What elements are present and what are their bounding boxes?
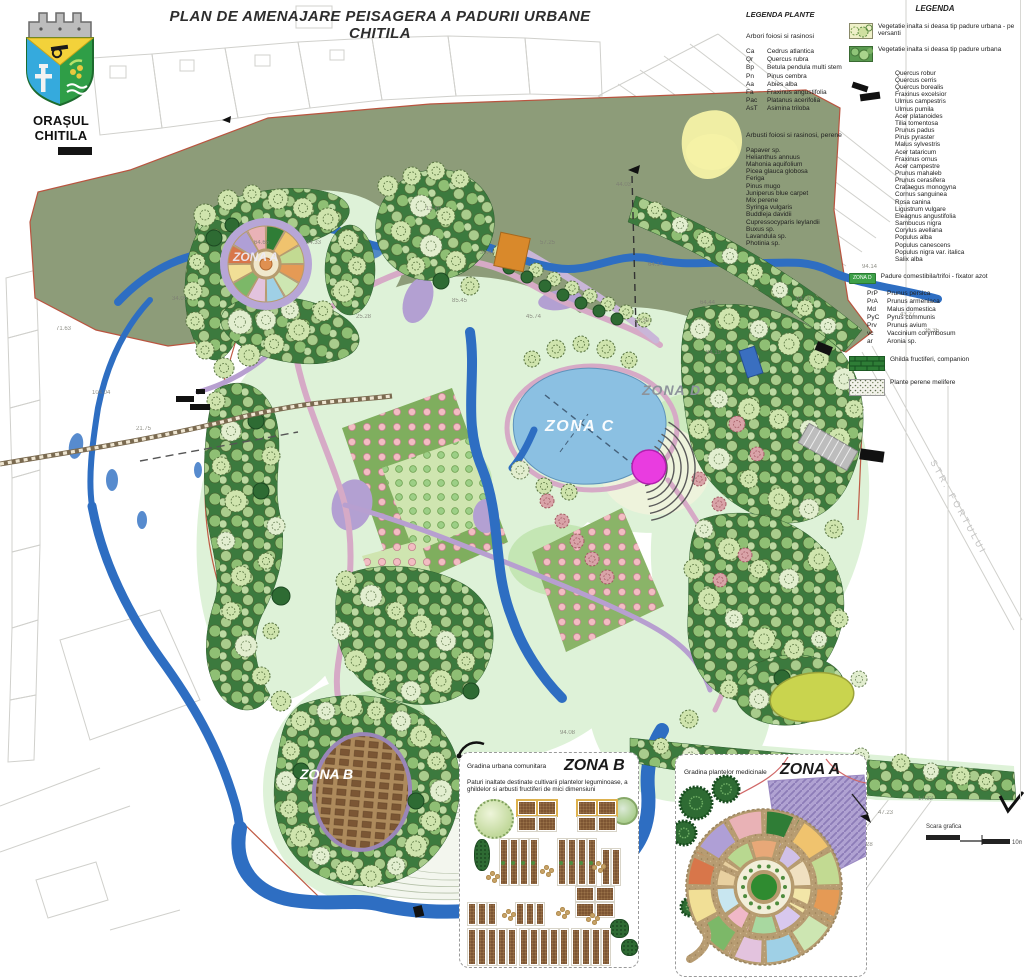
species-item: Acer tataricum (895, 149, 1021, 156)
species-name: Prunus armeniaca (887, 298, 940, 306)
tree-crown (923, 763, 939, 779)
tree-crown (336, 571, 356, 591)
tree-crown (280, 800, 298, 818)
tree-crown (243, 185, 261, 203)
tree-crown (387, 857, 405, 875)
species-code: PyC (867, 314, 887, 322)
legend-entry4-label: Plante perene melifere (890, 379, 955, 386)
raised-bed (592, 929, 600, 965)
tree-crown (811, 631, 827, 647)
plant-dot (559, 861, 563, 865)
tree-crown (978, 773, 994, 789)
raised-bed (576, 887, 594, 901)
tree-crown (231, 566, 251, 586)
flower-cluster (486, 875, 491, 880)
species-item: Sambucus nigra (895, 220, 1021, 227)
raised-bed (488, 929, 496, 965)
tree-crown (536, 478, 552, 494)
species-code: PrA (867, 298, 887, 306)
species-name: Malus domestica (887, 306, 936, 314)
tree-crown (769, 409, 789, 429)
shrub-item: Pinus mugo (746, 183, 848, 190)
tree-crown (695, 520, 713, 538)
tree-crown (738, 398, 760, 420)
tree-crown (268, 189, 288, 209)
food-forest-row: PyCPyrus communis (867, 314, 1021, 322)
plant-dot (569, 861, 573, 865)
species-code: ar (867, 338, 887, 346)
species-item: Crataegus monogyna (895, 184, 1021, 191)
shrub (474, 839, 490, 871)
legend-species-list: Quercus roburQuercus cerrisQuercus borea… (895, 70, 1021, 263)
raised-bed (598, 801, 616, 815)
flower-cluster (598, 868, 603, 873)
legend-tree-row: CaCedrus atlantica (746, 48, 848, 56)
tree-crown (718, 308, 740, 330)
species-item: Acer platanoides (895, 113, 1021, 120)
vegetation-dense-icon (849, 46, 873, 64)
tree-crown (317, 208, 339, 230)
tree-crown (336, 861, 356, 881)
tree-crown (291, 711, 311, 731)
tree-crown (340, 695, 362, 717)
tree-crown (784, 639, 804, 659)
shrub (610, 919, 629, 938)
legend-plante-title: LEGENDA PLANTE (746, 10, 848, 19)
species-code: Aa (746, 81, 767, 89)
raised-bed (612, 849, 620, 885)
legend-entry1-label: Vegetatie inalta si deasa tip padure urb… (878, 23, 1021, 38)
flower-cluster (592, 920, 597, 925)
tree-crown (282, 742, 300, 760)
tree-crown (403, 167, 421, 185)
flower-cluster (586, 917, 591, 922)
tree-crown (360, 585, 382, 607)
flower-cluster (546, 872, 551, 877)
tree-crown (573, 336, 589, 352)
tree-crown (206, 230, 222, 246)
tree-crown (825, 520, 843, 538)
scale-bar-graphic: 10m (926, 832, 1022, 848)
plant-dot (501, 861, 505, 865)
species-item: Populus alba (895, 234, 1021, 241)
logo-caption: ORAȘUL CHITILA (6, 113, 116, 143)
tree-crown (689, 419, 709, 439)
tree-crown (575, 297, 587, 309)
tree-crown (892, 754, 910, 772)
shrub (621, 939, 638, 956)
tree-crown (653, 738, 669, 754)
tree-crown (391, 711, 411, 731)
boundary-hook-mark (452, 738, 492, 768)
legend-tree-row: AsTAsimina triloba (746, 105, 848, 113)
plant-dot (531, 861, 535, 865)
species-code: AsT (746, 105, 767, 113)
species-code: PrP (867, 290, 887, 298)
species-name: Vaccinium corymbosum (887, 330, 956, 338)
tree-crown (405, 835, 427, 857)
tree-crown (360, 865, 382, 887)
tree-crown (217, 532, 235, 550)
inset-zona-a: Gradina plantelor medicinale ZONA A (675, 754, 867, 977)
tree-crown (317, 702, 335, 720)
tree-crown (708, 448, 730, 470)
tree-crown (437, 207, 455, 225)
species-name: Asimina triloba (767, 105, 810, 113)
plant-dot (521, 861, 525, 865)
tree-crown (461, 277, 479, 295)
food-forest-row: vcVaccinium corymbosum (867, 330, 1021, 338)
event-stage (632, 450, 666, 484)
north-pointer-icon (846, 788, 890, 832)
tree-crown (851, 671, 867, 687)
tree-crown (313, 301, 333, 321)
tree-crown (637, 313, 651, 327)
raised-bed (488, 903, 496, 925)
tree-crown (521, 271, 533, 283)
tree-crown (252, 667, 270, 685)
species-item: Fraxinus excelsior (895, 91, 1021, 98)
tree-crown (410, 615, 432, 637)
species-item: Malus sylvestris (895, 141, 1021, 148)
species-name: Platanus acerifolia (767, 97, 820, 105)
species-code: Md (867, 306, 887, 314)
raised-bed (526, 903, 534, 925)
tree-crown (408, 793, 424, 809)
legend-tree-row: PacPlatanus acerifolia (746, 97, 848, 105)
inset-a-label: Gradina plantelor medicinale (684, 769, 767, 776)
species-code: Pac (746, 97, 767, 105)
species-item: Tilia tomentosa (895, 120, 1021, 127)
tree-crown (288, 319, 310, 341)
raised-bed (602, 929, 610, 965)
legend-plante-shrub-list: Papaver sp.Helianthus annuusMahonia aqui… (746, 147, 848, 248)
tree-crown (647, 202, 663, 218)
tree-crown (952, 767, 970, 785)
tree-crown (697, 232, 713, 248)
legend-plante: LEGENDA PLANTE Arbori foiosi si rasinosi… (746, 10, 848, 247)
tree-crown (698, 588, 720, 610)
tree-crown (600, 570, 614, 584)
tree-crown (779, 569, 799, 589)
scale-bar: Scara grafica 10m (926, 824, 1022, 853)
species-code: Fa (746, 89, 767, 97)
tree-crown (338, 230, 358, 250)
tree-crown (539, 280, 551, 292)
shrub-item: Helianthus annuus (746, 154, 848, 161)
species-item: Prunus mahaleb (895, 170, 1021, 177)
guild-fruit-icon (849, 356, 885, 373)
tree-crown (312, 847, 330, 865)
species-item: Prunus padus (895, 127, 1021, 134)
tree-crown (194, 204, 216, 226)
tree-crown (747, 264, 763, 280)
tree-crown (597, 340, 615, 358)
species-name: Aronia sp. (887, 338, 916, 346)
tree-crown (235, 635, 257, 657)
tree-crown (186, 312, 204, 330)
raised-bed (538, 817, 556, 831)
tree-crown (214, 358, 234, 378)
species-item: Cornus sanguinea (895, 191, 1021, 198)
tree-crown (749, 689, 769, 709)
raised-bed (536, 903, 544, 925)
raised-bed (540, 929, 548, 965)
tree-crown (778, 333, 800, 355)
tree-crown (421, 811, 441, 831)
tree-crown (420, 235, 442, 257)
tree-crown (410, 725, 432, 747)
legend-tree-row: PnPinus cembra (746, 73, 848, 81)
zona-a-mandala (228, 226, 304, 302)
tree-crown (253, 483, 269, 499)
species-item: Ligustrum vulgare (895, 206, 1021, 213)
tree-crown (212, 457, 230, 475)
legend-entry3-label: Ghilda fructiferi, companion (890, 356, 969, 363)
legend-plante-section2: Arbusti foiosi si rasinosi, perene (746, 132, 848, 139)
species-name: Betula pendula multi stem (767, 64, 842, 72)
raised-bed (508, 929, 516, 965)
tree-crown (401, 681, 421, 701)
species-name: Fraxinus angustifolia (767, 89, 827, 97)
species-name: Pyrus communis (887, 314, 935, 322)
species-name: Prunus persica (887, 290, 930, 298)
tree-crown (436, 631, 456, 651)
tree-crown (621, 352, 637, 368)
shrub-item: Photinia sp. (746, 240, 848, 247)
tree-crown (430, 670, 452, 692)
tree-crown (729, 416, 745, 432)
tree-crown (808, 548, 830, 570)
raised-bed (598, 817, 616, 831)
species-name: Prunus avium (887, 322, 927, 330)
tree-crown (768, 488, 790, 510)
tree-crown (585, 552, 599, 566)
tree-crown (189, 254, 205, 270)
tree-crown (264, 334, 284, 354)
shrub-item: Feriga (746, 175, 848, 182)
species-item: Prunus cerasifera (895, 177, 1021, 184)
tree-crown (738, 548, 752, 562)
shrub-item: Mahonia aquifolium (746, 161, 848, 168)
species-code: Ca (746, 48, 767, 56)
species-item: Eleagnus angustifolia (895, 213, 1021, 220)
species-item: Rosa canina (895, 199, 1021, 206)
food-forest-row: PrPPrunus persica (867, 290, 1021, 298)
tree-crown (333, 280, 355, 302)
raised-bed (596, 903, 614, 917)
food-forest-row: PrvPrunus avium (867, 322, 1021, 330)
species-name: Abies alba (767, 81, 797, 89)
tree-crown (258, 553, 274, 569)
raised-bed (560, 929, 568, 965)
shrub-item: Lavandula sp. (746, 233, 848, 240)
tree-crown (830, 610, 848, 628)
tree-crown (720, 680, 738, 698)
flower-cluster (592, 865, 597, 870)
tree-crown (372, 672, 390, 690)
tree-crown (740, 470, 758, 488)
tree-crown (332, 622, 350, 640)
shrub-item: Syringa vulgaris (746, 204, 848, 211)
tree-crown (772, 282, 788, 298)
legend: LEGENDA Vegetatie inalta si deasa tip pa… (849, 4, 1021, 403)
tree-crown (263, 623, 279, 639)
tree-crown (457, 652, 475, 670)
plant-dot (511, 861, 515, 865)
raised-bed (530, 929, 538, 965)
page-title: PLAN DE AMENAJARE PEISAGERA A PADURII UR… (150, 8, 610, 42)
species-code: Bp (746, 64, 767, 72)
tree-crown (196, 341, 214, 359)
tree-crown (184, 282, 202, 300)
tree-crown (555, 514, 569, 528)
tree-crown (276, 771, 296, 791)
tree-crown (725, 610, 743, 628)
shrub-item: Cupressocyparis leylandii (746, 219, 848, 226)
tree-crown (540, 494, 554, 508)
species-item: Quercus borealis (895, 84, 1021, 91)
legend-title: LEGENDA (849, 4, 1021, 13)
species-item: Salix alba (895, 256, 1021, 263)
melliferous-icon (849, 379, 885, 398)
tree-crown (272, 587, 290, 605)
tree-crown (561, 484, 577, 500)
shrub-item: Mix perene (746, 197, 848, 204)
tree-crown (348, 257, 366, 275)
tree-crown (387, 602, 405, 620)
tree-crown (684, 559, 704, 579)
tree-crown (218, 190, 238, 210)
tree-crown (463, 683, 479, 699)
species-item: Ulmus pumila (895, 106, 1021, 113)
scale-length-label: 10m (1012, 840, 1022, 846)
inset-b-beds (460, 753, 638, 967)
legend-tree-row: BpBetula pendula multi stem (746, 64, 848, 72)
tree-crown (722, 248, 738, 264)
shrub-item: Buddleja davidii (746, 211, 848, 218)
tree-crown (225, 490, 247, 512)
tree-crown (410, 195, 432, 217)
species-name: Pinus cembra (767, 73, 807, 81)
flower-cluster (562, 914, 567, 919)
tree-crown (267, 517, 285, 535)
tree-crown (293, 763, 309, 779)
flower-cluster (508, 916, 513, 921)
raised-bed (578, 817, 596, 831)
tree-crown (290, 825, 312, 847)
vegetation-slope-icon (849, 23, 873, 41)
raised-bed (516, 903, 524, 925)
shrub-item: Juniperus blue carpet (746, 190, 848, 197)
raised-bed (578, 801, 596, 815)
tree-crown (718, 538, 740, 560)
flower-cluster (556, 911, 561, 916)
species-item: Quercus cerris (895, 77, 1021, 84)
tree-crown (430, 780, 452, 802)
tree-crown (367, 702, 385, 720)
tree-crown (797, 300, 813, 316)
food-forest-row: MdMalus domestica (867, 306, 1021, 314)
city-logo: ORAȘUL CHITILA (6, 2, 116, 155)
raised-bed (572, 929, 580, 965)
flower-cluster (492, 878, 497, 883)
raised-bed (518, 817, 536, 831)
legend-plante-section1: Arbori foiosi si rasinosi (746, 33, 848, 40)
plant-dot (579, 861, 583, 865)
street-label: STR. FORTULUI (928, 458, 989, 556)
tree-crown (799, 499, 819, 519)
inset-zona-b: Gradina urbana comunitara ZONA B Paturi … (459, 752, 639, 968)
food-forest-row: PrAPrunus armeniaca (867, 298, 1021, 306)
logo-scale-mark (58, 147, 92, 155)
tree-crown (256, 310, 276, 330)
tree-crown (713, 573, 727, 587)
tree-crown (593, 305, 605, 317)
tree-crown (433, 273, 449, 289)
medicinal-garden-drawing (676, 755, 866, 976)
species-item: Corylus avellana (895, 227, 1021, 234)
tree-crown (710, 390, 728, 408)
tree-crown (680, 710, 698, 728)
shrub-item: Buxus sp. (746, 226, 848, 233)
food-forest-row: arAronia sp. (867, 338, 1021, 346)
tree-crown (524, 351, 540, 367)
tree-crown (557, 289, 569, 301)
species-code: vc (867, 330, 887, 338)
tree-crown (293, 198, 313, 218)
scale-bar-label: Scara grafica (926, 824, 1022, 830)
flower-cluster (502, 913, 507, 918)
tree-crown (750, 447, 764, 461)
plan-page: STR. FORTULUI PLAN DE AMENAJARE PEISAGER… (0, 0, 1024, 979)
species-code: Qr (746, 56, 767, 64)
tree-crown (570, 534, 584, 548)
tree-crown (753, 628, 775, 650)
legend-zona-d-label: Padure comestibila/trifoi - fixator azot (881, 273, 988, 280)
zona-d-badge: ZONA D (849, 273, 876, 284)
tree-crown (446, 251, 466, 271)
inset-a-title: ZONA A (780, 761, 840, 779)
tree-crown (672, 217, 688, 233)
species-item: Fraxinus ornus (895, 156, 1021, 163)
tree-crown (378, 176, 398, 196)
species-item: Pirus pyraster (895, 134, 1021, 141)
legend-tree-row: AaAbies alba (746, 81, 848, 89)
raised-bed (498, 929, 506, 965)
legend-tree-row: QrQuercus rubra (746, 56, 848, 64)
species-item: Quercus robur (895, 70, 1021, 77)
species-code: Pn (746, 73, 767, 81)
tree-crown (407, 257, 425, 275)
tree-crown (391, 221, 411, 241)
tree-crown (427, 162, 445, 180)
inset-tree (474, 799, 514, 839)
tree-crown (451, 170, 469, 188)
tree-crown (547, 340, 565, 358)
raised-bed (538, 801, 556, 815)
tree-crown (690, 319, 710, 339)
shrub-item: Papaver sp. (746, 147, 848, 154)
raised-bed (478, 903, 486, 925)
species-name: Quercus rubra (767, 56, 809, 64)
legend-plante-tree-list: CaCedrus atlanticaQrQuercus rubraBpBetul… (746, 48, 848, 114)
legend-tree-row: FaFraxinus angustifolia (746, 89, 848, 97)
tree-crown (222, 602, 240, 620)
species-item: Ulmus campestris (895, 98, 1021, 105)
raised-bed (468, 929, 476, 965)
tree-crown (611, 313, 623, 325)
